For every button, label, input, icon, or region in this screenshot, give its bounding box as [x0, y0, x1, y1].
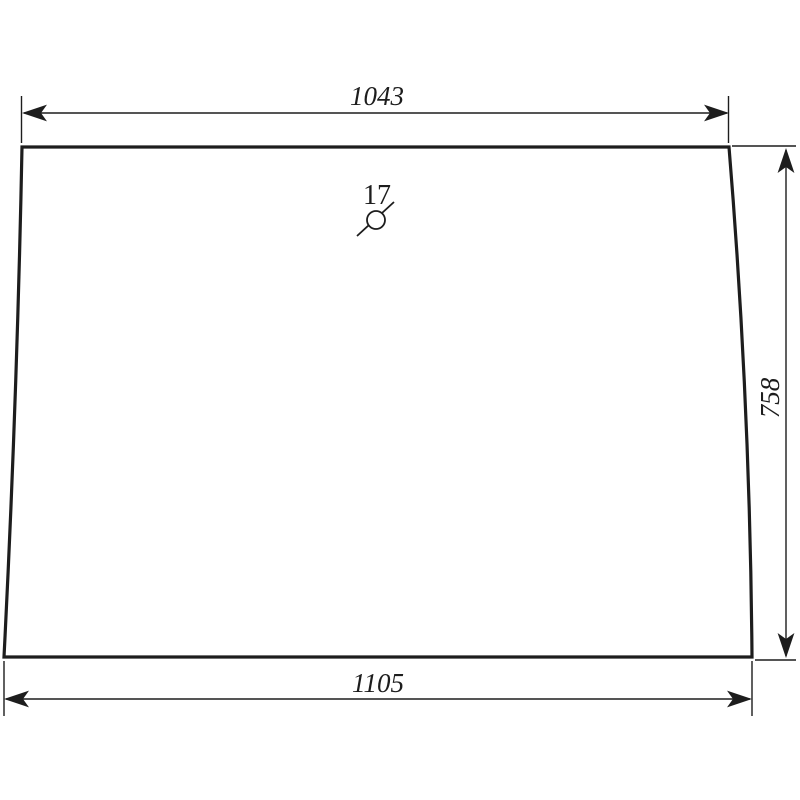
- top-dimension: 1043: [22, 81, 730, 143]
- top-dimension-label: 1043: [350, 81, 404, 111]
- callout-17: 17: [357, 180, 394, 236]
- bottom-dimension: 1105: [4, 661, 752, 716]
- right-dimension-label: 758: [755, 377, 785, 418]
- callout-circle-icon: [367, 211, 385, 229]
- technical-drawing-canvas: 1043 758 1105 17: [0, 0, 800, 800]
- callout-label: 17: [363, 180, 391, 211]
- panel-dimension-drawing: 1043 758 1105 17: [0, 0, 800, 800]
- bottom-dimension-label: 1105: [352, 668, 404, 698]
- right-dimension: 758: [732, 146, 796, 660]
